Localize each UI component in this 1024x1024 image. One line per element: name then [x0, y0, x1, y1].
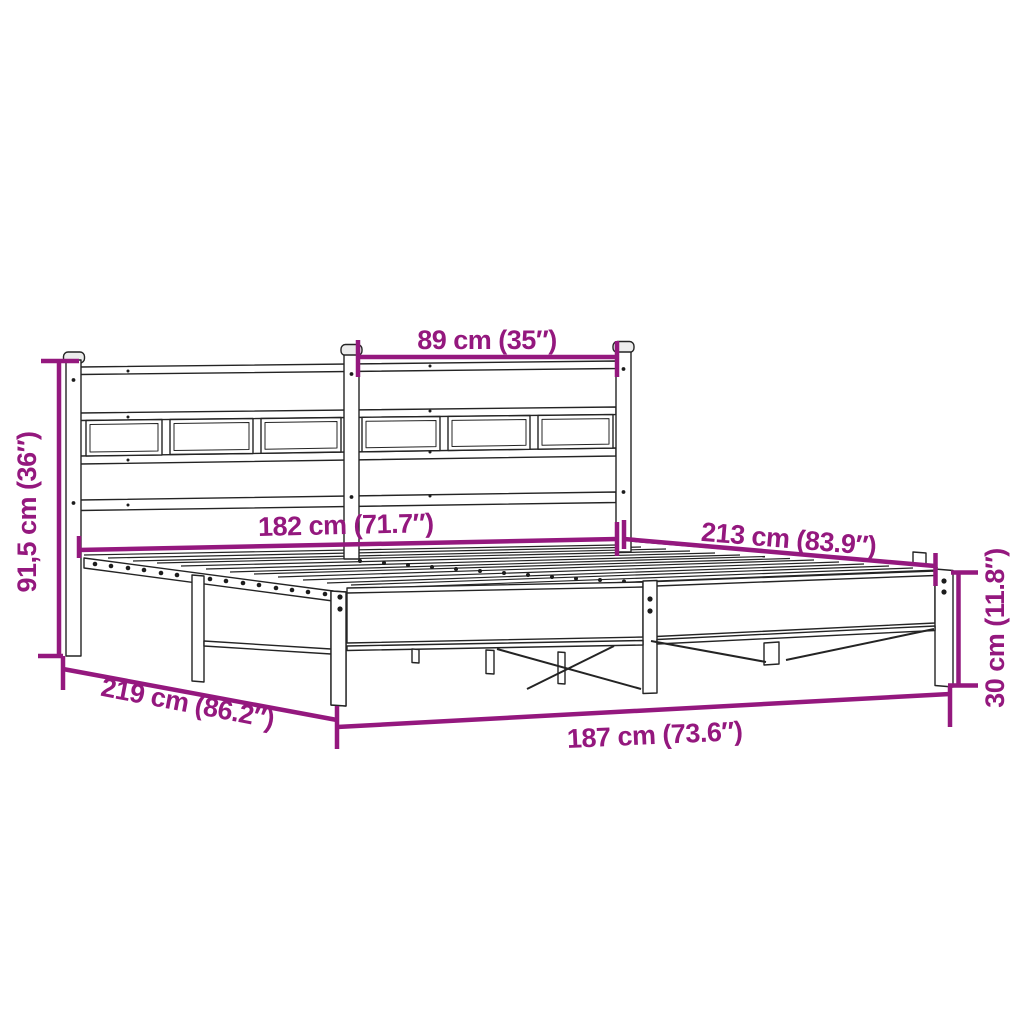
label-headboard-section-width: 89 cm (35″) — [417, 325, 557, 355]
support-stub — [486, 650, 494, 674]
leg-brace — [204, 641, 331, 654]
label-slat-area-length: 182 cm (71.7″) — [258, 508, 434, 542]
headboard-post-left — [66, 360, 81, 656]
diagram-canvas: 89 cm (35″) 91,5 cm (36″) 182 cm (71.7″)… — [0, 0, 1024, 1024]
bed-frame-drawing — [64, 342, 954, 707]
label-frame-height: 30 cm (11.8″) — [980, 548, 1010, 708]
label-headboard-height: 91,5 cm (36″) — [12, 431, 42, 592]
front-frame — [331, 569, 953, 706]
bed-frame-dimension-diagram: 89 cm (35″) 91,5 cm (36″) 182 cm (71.7″)… — [0, 0, 1024, 1024]
label-diagonal-depth: 219 cm (86.2″) — [99, 672, 277, 734]
front-panel-left — [347, 582, 643, 643]
label-total-width: 187 cm (73.6″) — [566, 716, 743, 754]
support-stub — [764, 642, 779, 665]
support-stub — [412, 649, 419, 663]
far-leg — [192, 575, 204, 682]
front-leg-corner — [935, 569, 953, 687]
